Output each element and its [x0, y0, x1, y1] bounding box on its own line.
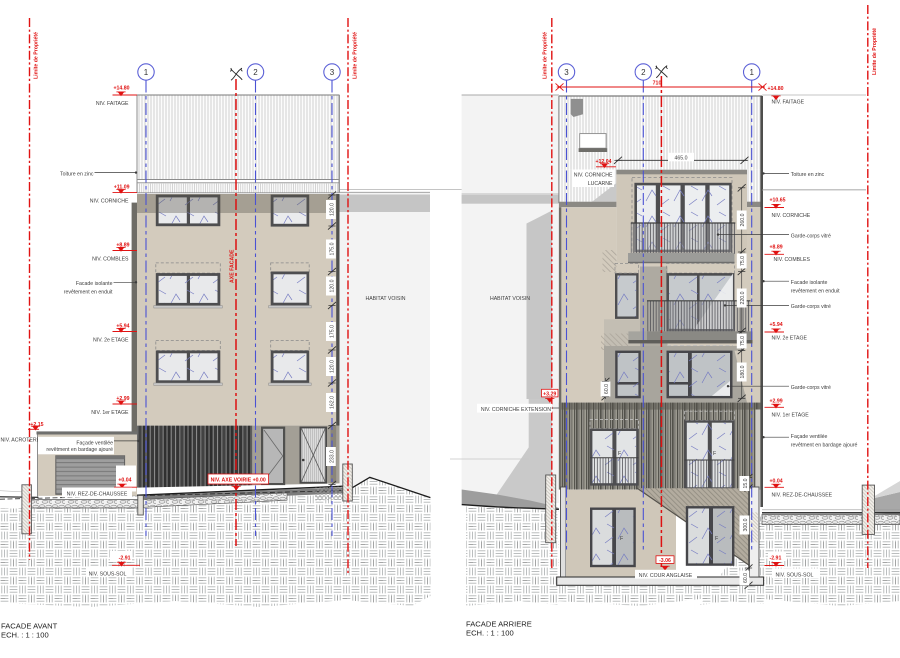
svg-text:revêtment en bardage ajouré: revêtment en bardage ajouré	[791, 443, 858, 449]
svg-text:1: 1	[749, 68, 754, 77]
svg-text:Limite de Propriété: Limite de Propriété	[34, 32, 40, 79]
svg-text:120.0: 120.0	[329, 360, 335, 373]
svg-text:75.0: 75.0	[740, 256, 746, 266]
svg-text:HABITAT VOISIN: HABITAT VOISIN	[365, 296, 405, 302]
svg-text:+14.80: +14.80	[768, 86, 784, 92]
svg-text:1: 1	[144, 68, 149, 77]
svg-text:3: 3	[330, 68, 335, 77]
svg-text:Garde-corps vitré: Garde-corps vitré	[791, 233, 831, 239]
svg-text:+0.04: +0.04	[118, 478, 131, 484]
svg-text:revêtement en enduit: revêtement en enduit	[64, 290, 113, 296]
svg-text:NIV. CORNICHE: NIV. CORNICHE	[772, 213, 811, 219]
svg-text:HABITAT VOISIN: HABITAT VOISIN	[490, 296, 530, 302]
svg-text:Façade ventilée: Façade ventilée	[76, 440, 113, 446]
svg-text:NIV. COMBLES: NIV. COMBLES	[774, 257, 811, 263]
svg-text:NIV. CORNICHE: NIV. CORNICHE	[574, 173, 613, 179]
svg-text:NIV. 2e ETAGE: NIV. 2e ETAGE	[93, 337, 129, 343]
svg-text:NIV. CORNICHE EXTENSION: NIV. CORNICHE EXTENSION	[481, 407, 551, 413]
svg-text:Toiture en zinc: Toiture en zinc	[60, 171, 94, 177]
svg-text:NIV. AXE VOIRIE +0.00: NIV. AXE VOIRIE +0.00	[211, 478, 266, 484]
svg-text:233.0: 233.0	[329, 450, 335, 463]
svg-text:+2.99: +2.99	[770, 398, 783, 404]
svg-text:NIV. REZ-DE-CHAUSSEE: NIV. REZ-DE-CHAUSSEE	[772, 493, 833, 499]
svg-text:2: 2	[253, 68, 258, 77]
svg-text:+0.04: +0.04	[770, 478, 783, 484]
svg-text:NIV. CORNICHE: NIV. CORNICHE	[90, 198, 129, 204]
svg-text:710: 710	[653, 81, 662, 87]
svg-text:+10.65: +10.65	[770, 197, 786, 203]
svg-text:Façade ventilée: Façade ventilée	[791, 434, 828, 440]
svg-text:F: F	[715, 536, 718, 542]
svg-text:+5.94: +5.94	[770, 322, 783, 328]
svg-text:-2.91: -2.91	[119, 555, 131, 561]
svg-text:162.0: 162.0	[329, 396, 335, 409]
svg-text:NIV. ACROTERE: NIV. ACROTERE	[1, 437, 41, 443]
svg-text:Facade isolante: Facade isolante	[76, 281, 113, 287]
svg-text:+8.89: +8.89	[770, 244, 783, 250]
svg-text:ECH. : 1 : 100: ECH. : 1 : 100	[1, 631, 49, 640]
svg-text:120.0: 120.0	[329, 203, 335, 216]
svg-text:2: 2	[641, 68, 646, 77]
svg-text:revêtment en bardage ajouré: revêtment en bardage ajouré	[46, 447, 113, 453]
svg-text:LUCARNE: LUCARNE	[588, 181, 613, 187]
svg-text:-3.06: -3.06	[659, 558, 671, 564]
svg-text:F: F	[620, 536, 623, 542]
svg-text:120.0: 120.0	[329, 279, 335, 292]
svg-text:Limite de Propriété: Limite de Propriété	[353, 32, 359, 79]
svg-text:Limite de Propriété: Limite de Propriété	[872, 28, 878, 75]
svg-text:Facade isolante: Facade isolante	[791, 280, 828, 286]
svg-text:Garde-corps vitré: Garde-corps vitré	[791, 385, 831, 391]
svg-text:+14.80: +14.80	[113, 86, 129, 92]
svg-text:75.0: 75.0	[740, 336, 746, 346]
svg-text:NIV. SOUS-SOL: NIV. SOUS-SOL	[776, 573, 814, 579]
svg-text:NIV. COMBLES: NIV. COMBLES	[92, 256, 129, 262]
svg-text:NIV. FAITAGE: NIV. FAITAGE	[96, 101, 129, 107]
svg-text:NIV. REZ-DE-CHAUSSEE: NIV. REZ-DE-CHAUSSEE	[67, 492, 128, 498]
svg-text:NIV. FAITAGE: NIV. FAITAGE	[772, 99, 805, 105]
svg-text:60.0: 60.0	[604, 384, 610, 394]
svg-text:15.0: 15.0	[743, 478, 749, 488]
svg-text:Limite de Propriété: Limite de Propriété	[543, 32, 549, 79]
svg-text:260.0: 260.0	[740, 213, 746, 226]
svg-text:Toiture en zinc: Toiture en zinc	[791, 172, 825, 178]
svg-text:60.0: 60.0	[743, 573, 749, 583]
svg-text:F: F	[713, 451, 716, 457]
svg-text:+3.29: +3.29	[543, 391, 556, 397]
svg-text:300.0: 300.0	[743, 518, 749, 531]
svg-text:220.0: 220.0	[740, 291, 746, 304]
svg-text:FACADE ARRIERE: FACADE ARRIERE	[466, 620, 532, 629]
svg-text:180.0: 180.0	[740, 365, 746, 378]
svg-text:175.0: 175.0	[329, 242, 335, 255]
svg-text:NIV. 2e ETAGE: NIV. 2e ETAGE	[772, 336, 808, 342]
svg-text:NIV. COUR ANGLAISE: NIV. COUR ANGLAISE	[639, 573, 693, 579]
svg-text:-2.91: -2.91	[770, 555, 782, 561]
svg-text:NIV. SOUS-SOL: NIV. SOUS-SOL	[89, 571, 127, 577]
svg-text:FACADE AVANT: FACADE AVANT	[1, 622, 58, 631]
svg-text:AXE FACADE: AXE FACADE	[230, 249, 236, 283]
svg-text:3: 3	[564, 68, 569, 77]
svg-text:465.0: 465.0	[675, 155, 688, 161]
svg-text:NIV. 1er ETAGE: NIV. 1er ETAGE	[91, 410, 129, 416]
svg-text:revêtement en enduit: revêtement en enduit	[791, 289, 840, 295]
svg-text:ECH. : 1 : 100: ECH. : 1 : 100	[466, 629, 514, 638]
svg-text:175.0: 175.0	[329, 325, 335, 338]
svg-text:NIV. 1er ETAGE: NIV. 1er ETAGE	[772, 412, 810, 418]
svg-text:F: F	[618, 451, 621, 457]
svg-text:Garde-corps vitré: Garde-corps vitré	[791, 304, 831, 310]
